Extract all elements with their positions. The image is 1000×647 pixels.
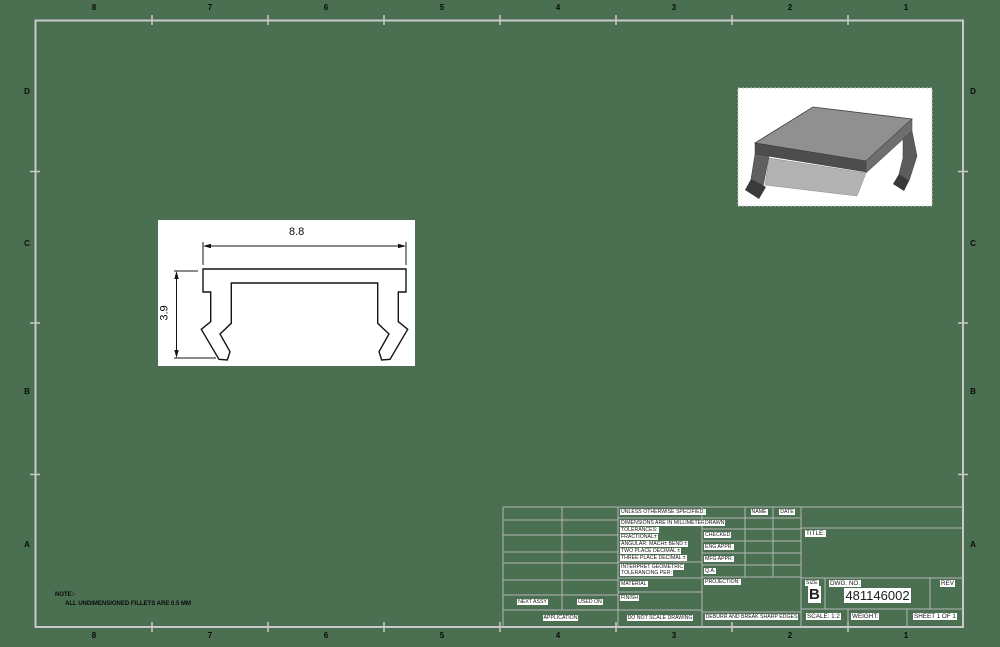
dim-width-label: 8.8 <box>289 226 304 238</box>
tb-tolerance-line-5: THREE PLACE DECIMAL ± <box>620 555 687 561</box>
zone-row-left-a: A <box>20 540 34 549</box>
tb-used-on: USED ON <box>577 599 603 605</box>
tb-name-header: NAME <box>751 509 768 515</box>
zone-col-top-4: 4 <box>548 3 568 12</box>
tb-rev-label: REV <box>940 580 955 587</box>
tb-row-qa: Q.A. <box>704 568 716 574</box>
tb-tolerance-line-0: DIMENSIONS ARE IN MILLIMETERS <box>620 520 709 526</box>
zone-col-bottom-1: 1 <box>896 631 916 640</box>
zone-col-top-7: 7 <box>200 3 220 12</box>
tb-size-value: B <box>808 586 821 603</box>
zone-col-top-5: 5 <box>432 3 452 12</box>
zone-row-right-b: B <box>966 387 980 396</box>
sheet-graphics <box>0 0 1000 647</box>
tb-title-label: TITLE: <box>805 530 826 537</box>
zone-row-right-d: D <box>966 87 980 96</box>
dim-height-label: 3.9 <box>159 305 171 320</box>
zone-row-right-c: C <box>966 239 980 248</box>
tb-dwg-no-label: DWG. NO. <box>829 580 861 587</box>
tb-unless: UNLESS OTHERWISE SPECIFIED: <box>620 509 706 515</box>
front-view-background <box>158 220 415 366</box>
title-block-grid <box>503 507 963 627</box>
tb-material-label: MATERIAL <box>620 581 648 587</box>
isometric-view <box>738 88 932 206</box>
zone-col-bottom-4: 4 <box>548 631 568 640</box>
zone-row-left-c: C <box>20 239 34 248</box>
tb-tolerance-line-3: ANGULAR: MACH± BEND ± <box>620 541 688 547</box>
tb-scale-text: SCALE: 1:2 <box>806 613 841 620</box>
zone-row-left-b: B <box>20 387 34 396</box>
zone-col-top-8: 8 <box>84 3 104 12</box>
tb-tolerance-line-2: FRACTIONAL± <box>620 534 658 540</box>
tb-date-header: DATE <box>779 509 794 515</box>
zone-col-bottom-7: 7 <box>200 631 220 640</box>
tb-row-mfg-appr: MFG APPR. <box>704 556 734 562</box>
tb-row-checked: CHECKED <box>704 532 731 538</box>
tb-row-drawn: DRAWN <box>704 520 725 526</box>
tb-deburr: DEBURR AND BREAK SHARP EDGES <box>705 614 799 620</box>
zone-col-top-3: 3 <box>664 3 684 12</box>
zone-col-top-2: 2 <box>780 3 800 12</box>
note-body: ALL UNDIMENSIONED FILLETS ARE 0.5 MM <box>65 601 191 607</box>
zone-col-bottom-5: 5 <box>432 631 452 640</box>
tb-dwg-no-value: 481146002 <box>844 588 910 603</box>
zone-row-left-d: D <box>20 87 34 96</box>
zone-col-bottom-8: 8 <box>84 631 104 640</box>
zone-col-top-1: 1 <box>896 3 916 12</box>
drawing-sheet: 8 7 6 5 4 3 2 1 8 7 6 5 4 3 2 1 D C B A … <box>0 0 1000 647</box>
tb-tolerance-line-4: TWO PLACE DECIMAL ± <box>620 548 681 554</box>
tb-tolerance-line-1: TOLERANCES: <box>620 527 659 533</box>
zone-col-top-6: 6 <box>316 3 336 12</box>
zone-col-bottom-3: 3 <box>664 631 684 640</box>
tb-finish-label: FINISH <box>620 595 639 601</box>
tb-row-eng-appr: ENG APPR. <box>704 544 734 550</box>
tb-do-not-scale: DO NOT SCALE DRAWING <box>627 615 694 621</box>
tb-next-assy: NEXT ASSY <box>517 599 548 605</box>
tb-application: APPLICATION <box>543 615 579 621</box>
note-heading: NOTE:- <box>55 592 76 598</box>
tb-interpret-2: TOLERANCING PER: <box>620 570 673 576</box>
tb-sheet-text: SHEET 1 OF 1 <box>913 613 957 620</box>
zone-col-bottom-6: 6 <box>316 631 336 640</box>
tb-row-projection: PROJECTION: <box>704 579 741 585</box>
zone-col-bottom-2: 2 <box>780 631 800 640</box>
tb-weight-label: WEIGHT: <box>851 613 879 620</box>
zone-row-right-a: A <box>966 540 980 549</box>
